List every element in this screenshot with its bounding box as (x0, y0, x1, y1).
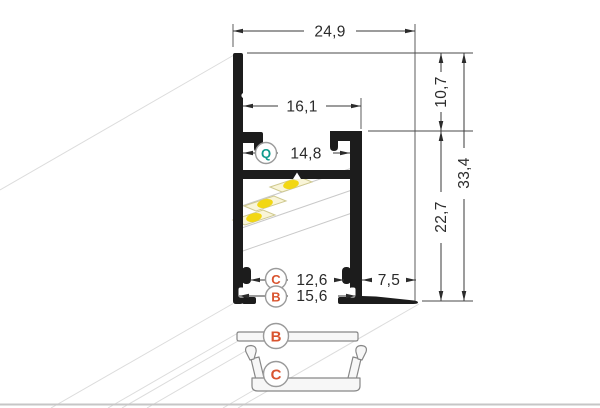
left-wall-notch (241, 93, 246, 98)
dim-flange-width-value: 7,5 (378, 272, 400, 289)
cover-c-label-letter: C (271, 367, 282, 384)
dim-body-height: 22,7 (433, 131, 450, 301)
dim-top-depth-value: 10,7 (433, 76, 450, 107)
profile-left-wall (233, 53, 243, 304)
trim-flange (362, 296, 418, 304)
cover-b-label: B (264, 324, 289, 349)
q-label-letter: Q (261, 146, 271, 161)
left-c-ridge (242, 267, 251, 284)
profile-dimension-drawing: 24,9 16,1 Q 14,8 10,7 22,7 (0, 0, 600, 408)
dim-body-height-value: 22,7 (433, 201, 450, 232)
cover-b (237, 332, 358, 341)
cover-c (246, 346, 367, 392)
c-label-letter: C (271, 272, 281, 287)
dim-b-slot-value: 15,6 (296, 288, 327, 305)
cover-b-label-letter: B (271, 329, 282, 346)
b-label-letter: B (271, 289, 280, 304)
cover-c-label: C (264, 362, 289, 387)
dim-flange-width: 7,5 (362, 272, 416, 289)
dim-total-height-value: 33,4 (456, 157, 473, 188)
right-c-ridge (342, 267, 351, 284)
technical-drawing-canvas: 24,9 16,1 Q 14,8 10,7 22,7 (0, 0, 600, 408)
dim-c-slot-value: 12,6 (296, 272, 327, 289)
dim-inner-width-value: 16,1 (286, 99, 317, 116)
dim-top-width-value: 24,9 (314, 24, 345, 41)
profile-right-wall (350, 131, 362, 304)
dim-q-slot-value: 14,8 (290, 146, 321, 163)
right-q-hook (330, 141, 338, 151)
right-foot (338, 297, 362, 304)
